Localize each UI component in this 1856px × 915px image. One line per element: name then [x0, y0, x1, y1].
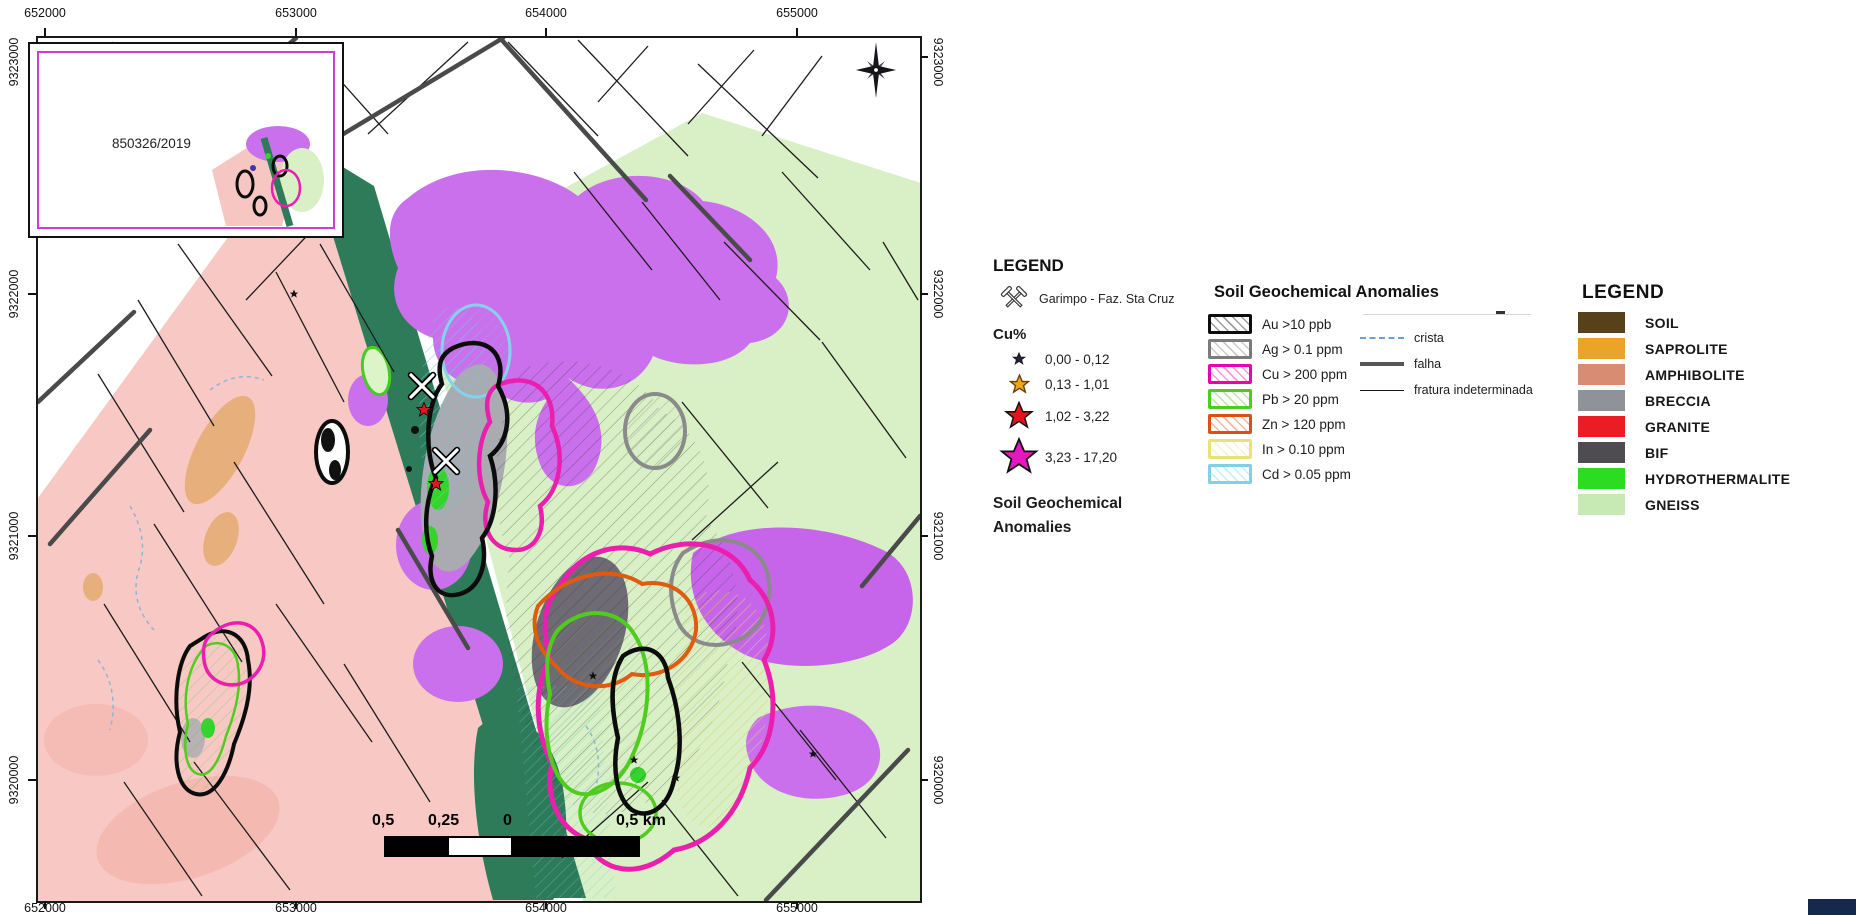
- anomaly-label: In > 0.10 ppm: [1262, 442, 1345, 457]
- anomaly-label: Zn > 120 ppm: [1262, 417, 1346, 432]
- anomaly-row: In > 0.10 ppm: [1208, 439, 1548, 459]
- lithology-items: SOIL SAPROLITE AMPHIBOLITE BRECCIA GRANI…: [1578, 312, 1856, 515]
- corner-decor: [1808, 899, 1856, 915]
- line-legend-row: fratura indeterminada: [1360, 377, 1550, 403]
- scale-label: 0,5 km: [616, 812, 666, 830]
- lithology-row: AMPHIBOLITE: [1578, 364, 1856, 385]
- x-axis-label: 655000: [776, 6, 818, 20]
- color-swatch: [1578, 468, 1625, 489]
- line-label: fratura indeterminada: [1414, 383, 1533, 397]
- hatched-swatch: [1208, 314, 1252, 334]
- color-swatch: [1578, 416, 1625, 437]
- compass-rose-icon: [854, 40, 898, 100]
- color-swatch: [1578, 442, 1625, 463]
- y-axis-label: 9321000: [931, 512, 945, 561]
- lithology-label: GRANITE: [1645, 419, 1710, 435]
- legend-anomalies-title: Soil Geochemical Anomalies: [1214, 283, 1548, 302]
- hatched-swatch: [1208, 339, 1252, 359]
- x-axis-label: 655000: [776, 901, 818, 915]
- falha-line-sample: [1360, 362, 1404, 366]
- legend-site-footer: Soil Geochemical Anomalies: [993, 492, 1233, 540]
- x-axis-label: 653000: [275, 6, 317, 20]
- inset-process-number: 850326/2019: [112, 136, 191, 151]
- cu-class-row: 1,02 - 3,22: [993, 398, 1233, 434]
- legend-site: LEGEND Garimpo - Faz. Sta Cruz Cu% 0,00 …: [993, 256, 1233, 540]
- lithology-label: SAPROLITE: [1645, 341, 1728, 357]
- lithology-label: BRECCIA: [1645, 393, 1711, 409]
- crista-line-sample: [1360, 337, 1404, 339]
- hatched-swatch: [1208, 414, 1252, 434]
- lithology-row: BIF: [1578, 442, 1856, 463]
- hatched-swatch: [1208, 439, 1252, 459]
- garimpo-legend-row: Garimpo - Faz. Sta Cruz: [999, 286, 1233, 312]
- legend-lithology: LEGEND SOIL SAPROLITE AMPHIBOLITE BRECCI…: [1578, 282, 1856, 515]
- line-label: falha: [1414, 357, 1441, 371]
- x-axis-label: 654000: [525, 6, 567, 20]
- cu-class-row: 0,00 - 0,12: [993, 347, 1233, 371]
- cu-percent-title: Cu%: [993, 326, 1233, 343]
- line-legend-row: falha: [1360, 351, 1550, 377]
- anomaly-label: Pb > 20 ppm: [1262, 392, 1339, 407]
- x-axis-label: 652000: [24, 901, 66, 915]
- lithology-row: SAPROLITE: [1578, 338, 1856, 359]
- x-axis-label: 652000: [24, 6, 66, 20]
- anomaly-label: Cd > 0.05 ppm: [1262, 467, 1351, 482]
- y-axis-label: 9322000: [931, 270, 945, 319]
- y-axis-label: 9323000: [931, 38, 945, 87]
- lithology-label: GNEISS: [1645, 497, 1700, 513]
- lithology-row: GRANITE: [1578, 416, 1856, 437]
- legend-anomalies: Soil Geochemical Anomalies Au >10 ppb Ag…: [1208, 283, 1548, 489]
- lithology-row: SOIL: [1578, 312, 1856, 333]
- line-label: crista: [1414, 331, 1444, 345]
- cu-class-row: 0,13 - 1,01: [993, 371, 1233, 398]
- color-swatch: [1578, 390, 1625, 411]
- cu-class-label: 3,23 - 17,20: [1045, 450, 1117, 465]
- lithology-label: HYDROTHERMALITE: [1645, 471, 1790, 487]
- anomaly-row: Zn > 120 ppm: [1208, 414, 1548, 434]
- line-legend-row: crista: [1360, 325, 1550, 351]
- line-legend: crista falha fratura indeterminada: [1360, 325, 1550, 403]
- hatched-swatch: [1208, 389, 1252, 409]
- scale-bar-graphic: [384, 836, 640, 857]
- star-icon: [993, 401, 1045, 431]
- star-icon: [993, 374, 1045, 395]
- y-axis-label: 9320000: [7, 756, 21, 805]
- lithology-label: SOIL: [1645, 315, 1679, 331]
- fratura-line-sample: [1360, 390, 1404, 391]
- crossed-hammers-icon: [999, 286, 1029, 312]
- anomaly-label: Cu > 200 ppm: [1262, 367, 1347, 382]
- garimpo-label: Garimpo - Faz. Sta Cruz: [1039, 292, 1174, 306]
- legend-site-title: LEGEND: [993, 256, 1233, 276]
- star-icon: [993, 437, 1045, 477]
- scale-label: 0,25: [428, 812, 459, 830]
- hatched-swatch: [1208, 464, 1252, 484]
- hatched-swatch: [1208, 364, 1252, 384]
- scale-labels: 0,5 0,25 0 0,5 km: [372, 812, 672, 832]
- x-axis-label: 654000: [525, 901, 567, 915]
- inset-locator-map: 850326/2019: [28, 42, 344, 238]
- legend-lithology-title: LEGEND: [1582, 282, 1856, 304]
- lithology-row: HYDROTHERMALITE: [1578, 468, 1856, 489]
- y-axis-label: 9322000: [7, 270, 21, 319]
- color-swatch: [1578, 364, 1625, 385]
- lithology-label: AMPHIBOLITE: [1645, 367, 1745, 383]
- cu-class-row: 3,23 - 17,20: [993, 434, 1233, 480]
- star-icon: [993, 352, 1045, 366]
- color-swatch: [1578, 494, 1625, 515]
- y-axis-label: 9320000: [931, 756, 945, 805]
- anomaly-label: Au >10 ppb: [1262, 317, 1331, 332]
- color-swatch: [1578, 338, 1625, 359]
- inset-mini-map: [198, 108, 334, 232]
- lithology-row: BRECCIA: [1578, 390, 1856, 411]
- cu-class-label: 0,00 - 0,12: [1045, 352, 1110, 367]
- scale-bar: 0,5 0,25 0 0,5 km: [372, 812, 672, 832]
- lithology-row: GNEISS: [1578, 494, 1856, 515]
- cu-class-label: 0,13 - 1,01: [1045, 377, 1110, 392]
- lithology-label: BIF: [1645, 445, 1668, 461]
- anomaly-row: Cd > 0.05 ppm: [1208, 464, 1548, 484]
- cu-class-label: 1,02 - 3,22: [1045, 409, 1110, 424]
- anomaly-label: Ag > 0.1 ppm: [1262, 342, 1343, 357]
- scale-label: 0: [503, 812, 512, 830]
- y-axis-label: 9323000: [7, 38, 21, 87]
- color-swatch: [1578, 312, 1625, 333]
- y-axis-label: 9321000: [7, 512, 21, 561]
- scale-label: 0,5: [372, 812, 394, 830]
- x-axis-label: 653000: [275, 901, 317, 915]
- geological-map-page: { "map": { "x_ticks": ["652000", "653000…: [0, 0, 1856, 915]
